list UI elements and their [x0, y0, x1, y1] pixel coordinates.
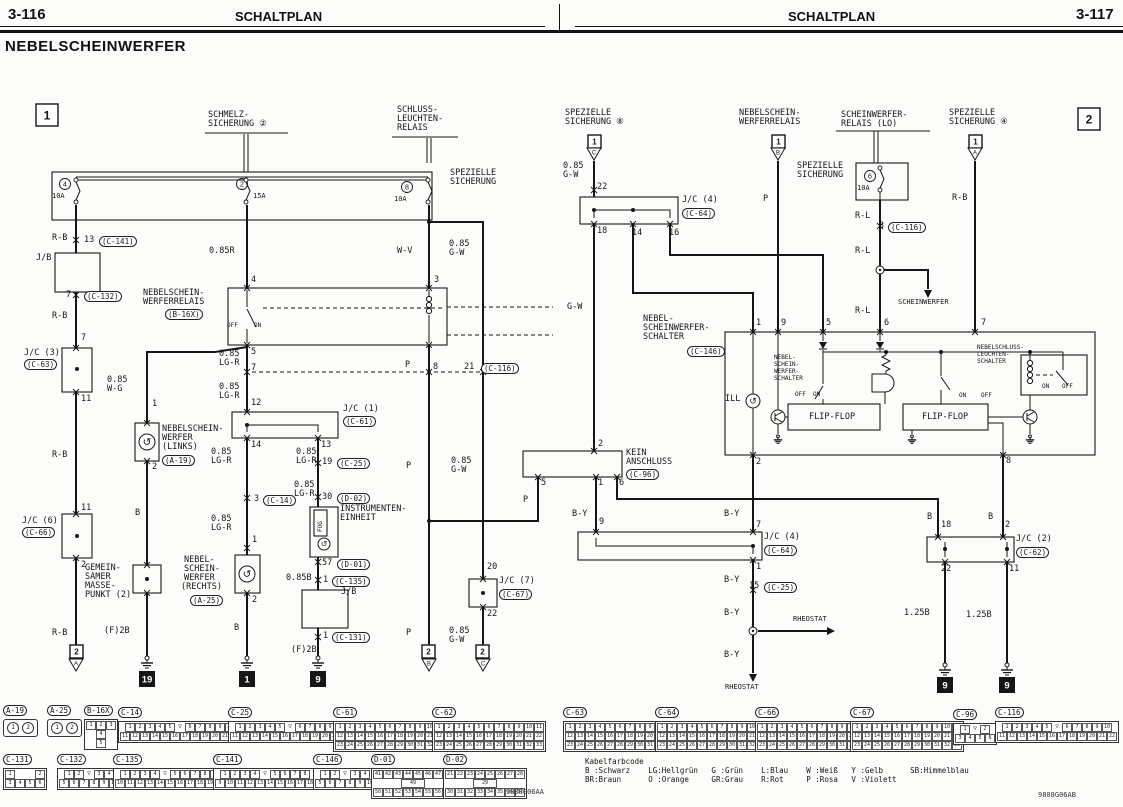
schaltplan-page: 3-116 SCHALTPLAN SCHALTPLAN 3-117 NEBELS…: [0, 0, 1123, 807]
connector-body: 12345▽678910111213141516171819202122: [995, 721, 1119, 743]
connector-pin: 3: [677, 723, 687, 732]
connector-pin: 14: [355, 732, 365, 741]
keyway-notch-icon: ▽: [160, 770, 170, 779]
wire-label: ON: [813, 392, 820, 398]
junction-dot: [1005, 547, 1009, 551]
connector-pinout-C-116: 12345▽678910111213141516171819202122: [995, 721, 1119, 743]
connector-pin: 7: [717, 723, 727, 732]
connector-pin: 52: [393, 788, 403, 797]
wire-thin: [882, 355, 890, 371]
keyway-notch-icon: ▽: [1052, 723, 1062, 732]
junction-dot: [481, 591, 485, 595]
wire-color-legend: Kabelfarbcode B :Schwarz LG:Hellgrün G :…: [585, 757, 969, 784]
connector-pin: 20: [320, 732, 330, 741]
connector-pin: 17: [807, 732, 817, 741]
wire-label: R-L: [855, 247, 870, 256]
connector-pin: 10: [225, 779, 235, 788]
connector-pin: 11: [125, 779, 135, 788]
connector-pin: 15: [275, 779, 285, 788]
connector-pin: 2: [862, 723, 872, 732]
ground-icon: [1005, 663, 1009, 667]
wire-label: (LINKS): [162, 443, 198, 452]
keyway-notch-icon: ▽: [260, 770, 270, 779]
connector-pin: 19: [635, 732, 645, 741]
connector-id-label: A-19: [3, 705, 27, 716]
connector-pin: 14: [260, 732, 270, 741]
connector-pin: 31: [737, 741, 747, 750]
connector-pin: 25: [677, 741, 687, 750]
connector-pin: 11: [235, 779, 245, 788]
wire-label: J/C (3): [24, 349, 60, 358]
connector-row: 1213141516171819202122: [335, 732, 445, 741]
connector-pin: 7: [912, 723, 922, 732]
connector-pin: 25: [777, 741, 787, 750]
wire-label: 10A: [857, 185, 870, 192]
connector-pin: 4: [882, 723, 892, 732]
connector-pin: [15, 770, 25, 779]
connector-pin: 8: [300, 770, 310, 779]
wire-label: G-W: [563, 171, 578, 180]
connector-pin: 3: [94, 770, 104, 779]
connector-pin: 9: [645, 723, 655, 732]
glyph-text: 9: [942, 680, 947, 691]
wire-label: ILL: [725, 395, 740, 404]
connector-ref-label: (C-135): [332, 576, 370, 587]
connector-pin: 3: [240, 770, 250, 779]
connector-row: 1213141516171819202122: [434, 732, 544, 741]
connector-pin: 12: [335, 732, 345, 741]
wire-thin: [76, 182, 80, 200]
connector-pin: 30: [635, 741, 645, 750]
connector-row: 12▽34: [59, 770, 119, 779]
connector-pin: 1: [657, 723, 667, 732]
connector-pin: 15: [365, 732, 375, 741]
wire-label: 1: [152, 400, 157, 409]
connector-id-label: C-14: [118, 707, 142, 718]
connector-row: 12345▽678910: [997, 723, 1117, 732]
connector-pin: 4: [155, 723, 165, 732]
ground-icon: [245, 656, 249, 660]
wire-label: J/B: [36, 254, 51, 263]
connector-pin: [25, 770, 35, 779]
connector-pinout-C-132: 12▽345678910: [57, 768, 121, 790]
connector-pin: 11: [534, 723, 544, 732]
connector-pin: 20: [514, 732, 524, 741]
connector-pin: 1: [5, 770, 15, 779]
ground-icon: [145, 656, 149, 660]
connector-body: 1234▽56789101112131415161718: [213, 768, 317, 790]
connector-id-label: C-146: [313, 754, 342, 765]
connector-pin: 16: [285, 779, 295, 788]
connector-pin: 32: [942, 741, 952, 750]
connector-pin: 24: [475, 770, 485, 779]
connector-pin: 4: [15, 779, 25, 788]
connector-pin: 3: [140, 770, 150, 779]
keyway-notch-icon: ▽: [340, 770, 350, 779]
connector-pin: 6: [280, 770, 290, 779]
glyph-text: 1: [244, 674, 250, 685]
connector-pin: 20: [415, 732, 425, 741]
connector-pin: 28: [484, 741, 494, 750]
connector-pin: 13: [255, 779, 265, 788]
connector-pin: 2: [66, 722, 78, 734]
wire-label: 1.25B: [966, 611, 992, 620]
wire-label: SICHERUNG: [797, 171, 843, 180]
connector-pin: 27: [605, 741, 615, 750]
connector-pin: 14: [677, 732, 687, 741]
connector-row: 5: [86, 739, 116, 748]
connector-pin: 19: [405, 732, 415, 741]
connector-pin: 20: [1087, 732, 1097, 741]
connector-pin: 33: [475, 788, 485, 797]
wire-thin: [428, 182, 432, 200]
connector-pin: 18: [717, 732, 727, 741]
wire-label: LG-R: [211, 457, 231, 466]
connector-pin: 16: [280, 732, 290, 741]
wire-label: 1: [756, 319, 761, 328]
connector-pin: 19: [504, 732, 514, 741]
wire-label: 1: [252, 536, 257, 545]
connector-pin: 31: [415, 741, 425, 750]
wire-label: 2: [598, 440, 603, 449]
connector-pinout-C-62: 1234567891011121314151617181920212223242…: [432, 721, 546, 752]
wire-label: SICHERUNG ②: [208, 120, 267, 129]
connector-pinout-A-25: 12: [47, 719, 82, 737]
connector-body: 123456: [3, 768, 47, 790]
junction-dot: [427, 519, 431, 523]
connector-pin: 7: [190, 770, 200, 779]
connector-pin: 9: [99, 779, 109, 788]
connector-pin: 1: [235, 723, 245, 732]
connector-pin: 15: [595, 732, 605, 741]
junction-dot: [1028, 350, 1032, 354]
connector-pin: 9: [514, 723, 524, 732]
connector-pin: 27: [474, 741, 484, 750]
connector-pin: 10: [942, 723, 952, 732]
connector-pin: 16: [170, 732, 180, 741]
connector-pin: 17: [484, 732, 494, 741]
connector-pin: 7: [335, 779, 345, 788]
connector-pin: 53: [403, 788, 413, 797]
connector-pin: 8: [89, 779, 99, 788]
connector-pin: 50: [373, 788, 383, 797]
connector-pin: 1: [125, 723, 135, 732]
connector-pinout-C-64: 1234567891011121314151617181920212223242…: [655, 721, 769, 752]
connector-pin: 31: [514, 741, 524, 750]
wire-label: J/B: [341, 588, 356, 597]
wire-label: P: [406, 462, 411, 471]
wire-label: 0.85B: [286, 574, 312, 583]
glyph-text: A: [973, 151, 977, 157]
connector-row: 111213141516171819202122: [997, 732, 1117, 741]
connector-pin: 2: [130, 770, 140, 779]
connector-pin: 1: [86, 721, 96, 730]
glyph-text: C: [592, 151, 597, 157]
wire-label: R-B: [52, 312, 67, 321]
wire-label: 5: [251, 348, 256, 357]
connector-pin: 3: [1022, 723, 1032, 732]
connector-pin: 4: [250, 770, 260, 779]
connector-pin: 5: [697, 723, 707, 732]
junction-dot: [75, 534, 79, 538]
wire-label: P: [763, 195, 768, 204]
connector-pin: 4: [365, 723, 375, 732]
connector-id-label: C-132: [57, 754, 86, 765]
connector-pin: 23: [465, 770, 475, 779]
connector-pin: 13: [345, 732, 355, 741]
connector-pin: 30: [504, 741, 514, 750]
wire-label: 15A: [253, 193, 266, 200]
wire-label: 2: [756, 458, 761, 467]
connector-pin: 43: [393, 770, 403, 779]
connector-pin: 9: [215, 723, 225, 732]
glyph-text: 1: [973, 137, 978, 146]
connector-row: 4142434445464748: [373, 770, 453, 779]
wire-thin: [246, 182, 250, 200]
connector-pin: 3: [355, 723, 365, 732]
connector-row: 1213141516171819202122: [852, 732, 962, 741]
connector-pin: 4: [1032, 723, 1042, 732]
wire-label: 1: [323, 576, 328, 585]
connector-pin: 31: [837, 741, 847, 750]
connector-row: 111213141516171819202122: [120, 732, 240, 741]
connector-pin: 18: [494, 732, 504, 741]
connector-pin: 22: [455, 770, 465, 779]
connector-pinout-C-146: 12▽345678910: [313, 768, 377, 790]
connector-pin: 14: [777, 732, 787, 741]
connector-pin: 12: [657, 732, 667, 741]
wire-label: B: [988, 513, 993, 522]
wire-label: SCHEINWERFER: [898, 299, 949, 306]
connector-pin: 13: [767, 732, 777, 741]
wire-label: J/C (4): [764, 533, 800, 542]
wire-label: EINHEIT: [340, 514, 376, 523]
glyph-text: 4: [63, 182, 67, 189]
wire-label: SCHALTER: [774, 376, 803, 382]
connector-pin: 25: [585, 741, 595, 750]
wire-label: 30: [322, 493, 332, 502]
connector-pin: 21: [942, 732, 952, 741]
connector-pin: 17: [185, 779, 195, 788]
connector-pin: 29: [625, 741, 635, 750]
connector-pin: 1: [320, 770, 330, 779]
connector-pin: 20: [837, 732, 847, 741]
connector-pin: 17: [295, 779, 305, 788]
connector-pin: 2: [74, 770, 84, 779]
connector-id-label: C-141: [213, 754, 242, 765]
connector-pin: 15: [787, 732, 797, 741]
component-box: [927, 537, 1014, 562]
connector-pin: 9: [355, 779, 365, 788]
wire-label: 11: [81, 504, 91, 513]
junction-dot: [751, 544, 755, 548]
connector-pin: 5: [96, 739, 106, 748]
connector-pin: 8: [1082, 723, 1092, 732]
wire-label: 7: [981, 319, 986, 328]
wire-label: W-V: [397, 247, 412, 256]
wire-label: 3: [434, 276, 439, 285]
glyph-text: ↺: [143, 438, 152, 449]
connector-pin: 26: [365, 741, 375, 750]
connector-pinout-C-141: 1234▽56789101112131415161718: [213, 768, 317, 790]
wire-label: 11: [81, 395, 91, 404]
fuse-terminal-icon: [878, 188, 882, 192]
connector-pin: 3: [106, 721, 116, 730]
connector-pin: 13: [444, 732, 454, 741]
connector-pin: 32: [465, 788, 475, 797]
connector-pin: 24: [667, 741, 677, 750]
connector-ref-label: (D-01): [337, 559, 370, 570]
connector-pin: 24: [575, 741, 585, 750]
wire-label: FLIP-FLOP: [922, 413, 968, 422]
connector-pin: 30: [445, 788, 455, 797]
glyph-text: 2: [74, 647, 79, 656]
glyph-text: B: [776, 151, 780, 157]
wire-label: 3: [254, 495, 259, 504]
connector-pin: 12: [240, 732, 250, 741]
wire-label: P: [406, 629, 411, 638]
connector-pin: 8: [827, 723, 837, 732]
connector-row: 2324252627282930313233: [852, 741, 962, 750]
connector-pin: 27: [375, 741, 385, 750]
connector-pin: 6: [615, 723, 625, 732]
connector-pin: 19: [310, 732, 320, 741]
fuse-terminal-icon: [426, 200, 430, 204]
connector-pin: 1: [434, 723, 444, 732]
connector-row: 1234567891011: [434, 723, 544, 732]
connector-body: 1234▽567891011121314151617181920: [113, 768, 227, 790]
connector-pin: 15: [464, 732, 474, 741]
wire-label: PUNKT (2): [85, 591, 131, 600]
glyph-text: ↺: [321, 540, 328, 549]
connector-pin: 8: [635, 723, 645, 732]
connector-id-label: C-64: [655, 707, 679, 718]
wire-label: B-Y: [572, 510, 587, 519]
connector-pin: 6: [484, 723, 494, 732]
wire-label: J/C (1): [343, 405, 379, 414]
connector-pin: 29: [912, 741, 922, 750]
connector-pin: 18: [395, 732, 405, 741]
wire-label: RELAIS: [397, 124, 428, 133]
glyph-text: ↺: [749, 396, 757, 406]
connector-pin: 49: [401, 779, 425, 788]
connector-pin: 1: [960, 725, 970, 734]
wire-label: 5: [541, 479, 546, 488]
wire-label: B-Y: [724, 510, 739, 519]
connector-ref-label: (C-67): [499, 589, 532, 600]
connector-pin: 3: [255, 723, 265, 732]
connector-pin: 4: [787, 723, 797, 732]
connector-pin: 17: [707, 732, 717, 741]
connector-pin: 1: [51, 722, 63, 734]
connector-pin: 8: [200, 770, 210, 779]
glyph-text: 1: [592, 137, 597, 146]
connector-pin: 12: [757, 732, 767, 741]
connector-id-label: C-135: [113, 754, 142, 765]
connector-pin: 28: [902, 741, 912, 750]
wire-label: B: [234, 624, 239, 633]
wire-label: 20: [487, 563, 497, 572]
connector-pin: 16: [605, 732, 615, 741]
coil-icon: [1027, 378, 1032, 383]
connector-pin: 4: [965, 734, 975, 743]
connector-pin: 15: [882, 732, 892, 741]
wire-label: G-W: [451, 466, 466, 475]
wire-label: G-W: [567, 303, 582, 312]
connector-pin: 29: [817, 741, 827, 750]
wire-label: 18: [597, 227, 607, 236]
junction-dot: [884, 350, 888, 354]
connector-pin: 2: [330, 770, 340, 779]
wire-label: 11: [1009, 565, 1019, 574]
connector-pin: 14: [872, 732, 882, 741]
wire-label: 22: [941, 565, 951, 574]
connector-row: 5678910: [59, 779, 119, 788]
connector-pin: 6: [707, 723, 717, 732]
connector-pin: 17: [1057, 732, 1067, 741]
connector-ref-label: (C-62): [1016, 547, 1049, 558]
wire-label: ON: [1042, 384, 1049, 390]
coil-icon: [1027, 372, 1032, 377]
connector-ref-label: (C-116): [888, 222, 926, 233]
keyway-notch-icon: ▽: [285, 723, 295, 732]
connector-pin: 23: [757, 741, 767, 750]
connector-pin: 18: [817, 732, 827, 741]
connector-pin: 26: [687, 741, 697, 750]
wire-label: OFF: [795, 392, 806, 398]
connector-pin: 35: [495, 788, 505, 797]
connector-pin: 18: [190, 732, 200, 741]
connector-pin: 17: [180, 732, 190, 741]
connector-pin: 30: [405, 741, 415, 750]
wire-label: R-L: [855, 307, 870, 316]
glyph-text: ↺: [243, 570, 252, 581]
keyway-notch-icon: ▽: [970, 725, 980, 734]
connector-pin: 23: [852, 741, 862, 750]
connector-pin: 5: [25, 779, 35, 788]
wire-label: WERFERRELAIS: [739, 118, 800, 127]
connector-body: 12: [3, 719, 38, 737]
connector-pin: 26: [595, 741, 605, 750]
connector-pin: 20: [932, 732, 942, 741]
connector-pin: 25: [355, 741, 365, 750]
connector-pin: 3: [145, 723, 155, 732]
connector-pin: 1: [565, 723, 575, 732]
connector-pin: 12: [245, 779, 255, 788]
wire-label: SCHALTER: [977, 359, 1006, 365]
connector-pin: 14: [265, 779, 275, 788]
wire-label: FOG: [318, 521, 324, 532]
connector-pin: 18: [625, 732, 635, 741]
connector-pin: 5: [975, 734, 985, 743]
connector-pin: 5: [315, 779, 325, 788]
connector-pin: 1: [7, 722, 19, 734]
connector-ref-label: (C-141): [99, 236, 137, 247]
wire-label: J/C (4): [682, 196, 718, 205]
wire-label: FLIP-FLOP: [809, 413, 855, 422]
junction-dot: [943, 547, 947, 551]
connector-pin: 7: [195, 723, 205, 732]
component-box: [523, 451, 622, 477]
connector-row: 3456: [5, 779, 45, 788]
connector-pin: 15: [687, 732, 697, 741]
connector-pin: 5: [797, 723, 807, 732]
wire-label: 8: [433, 363, 438, 372]
connector-pin: 45: [413, 770, 423, 779]
glyph-text: 6: [868, 174, 872, 181]
connector-pin: 2: [135, 723, 145, 732]
connector-pin: 23: [335, 741, 345, 750]
